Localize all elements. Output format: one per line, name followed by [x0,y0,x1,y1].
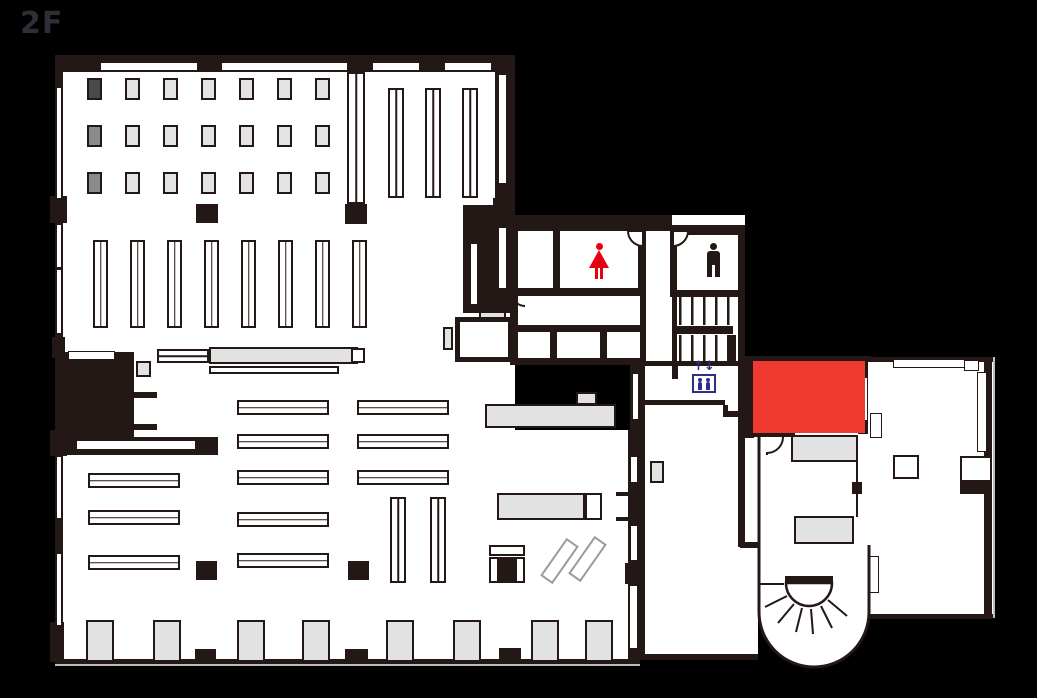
study-desk [315,78,330,100]
pillar [50,196,67,223]
low-shelf [237,553,329,568]
wall-female-left [553,228,560,296]
window [56,456,62,519]
study-desk [87,78,102,100]
elevator-box [692,374,716,393]
niche-band [960,482,992,494]
wall-desk [237,620,265,662]
tall-bookshelf [462,88,478,198]
female-icon-body [589,250,609,268]
study-desk [163,172,178,194]
low-shelf [357,470,449,485]
window [870,413,882,438]
study-desk [201,172,216,194]
pillar [50,622,64,662]
female-icon-leg [600,268,603,279]
window [630,525,638,561]
study-desk [201,125,216,147]
mid-bookshelf [241,240,256,328]
wall-dash-b1 [133,392,157,398]
window [444,62,492,71]
study-desk [163,125,178,147]
male-icon-body [707,251,720,265]
female-icon-leg [595,268,598,279]
study-desk [239,172,254,194]
lower-bookshelf [430,497,446,583]
study-desk [239,125,254,147]
square-table [960,456,992,482]
stair-landing [677,326,733,334]
study-desk [163,78,178,100]
low-shelf [88,473,180,488]
wall-below-female [510,288,646,296]
window [964,360,979,371]
floor-label: 2F [20,6,63,41]
study-desk [125,125,140,147]
window [470,243,478,305]
wall-elev-notch [672,365,678,379]
wall-bench-divider [856,461,858,517]
window [221,62,348,71]
mid-bookshelf [315,240,330,328]
wall-stair-edge [729,335,736,363]
pillar [345,204,367,224]
male-restroom-icon [704,243,722,277]
window [498,227,507,289]
window [56,87,62,199]
elevator-person [706,382,710,390]
pillar [625,563,639,584]
pillar [493,198,515,224]
window [76,440,196,450]
bench-b [794,516,854,544]
male-icon-leg [707,265,712,277]
window [893,359,967,368]
low-shelf [237,470,329,485]
pillar [345,649,368,663]
pillar [50,430,67,456]
pillar [196,204,218,223]
window [68,351,115,360]
pillar [499,648,521,663]
wall-cells-bottom [512,358,643,365]
highlighted-room [753,361,865,433]
copier-top [489,545,525,556]
window [632,373,639,420]
wall-f-bottom [640,654,758,660]
wall-toilet-top [510,215,672,231]
wall-dash-c1 [616,492,636,496]
spiral-notch [869,556,879,593]
low-shelf [88,555,180,570]
corridor-box [650,461,664,483]
wall-desk [386,620,414,662]
stairs-upper-flight [679,297,736,325]
wall-above-spiral [740,542,760,548]
wall-dash-c2 [616,517,636,521]
low-shelf [357,434,449,449]
tall-bookshelf [425,88,441,198]
outer-line-south [55,664,640,666]
male-icon-head [710,243,717,250]
wall-desk [585,620,613,662]
copier-core [497,557,516,583]
window [630,456,638,483]
floor-plan: 2F ↑↓ [0,0,1037,698]
table-end [585,493,602,520]
window [56,269,62,334]
window [498,74,507,184]
counter-end [351,348,365,363]
wall-below-male [670,290,745,297]
wall-desk [86,620,114,662]
study-desk [315,172,330,194]
copier-side [515,557,525,583]
low-shelf [88,510,180,525]
pillar [195,649,216,663]
low-shelf [237,512,329,527]
wall-cell-div-b [600,331,607,359]
elevator-arrows: ↑↓ [691,359,717,374]
pillar [196,561,217,580]
wall-desk [302,620,330,662]
wall-step-h [723,411,747,417]
kiosk-room [455,317,513,362]
window [629,585,638,649]
wall-bc-block [196,437,218,454]
mid-bookshelf [167,240,182,328]
small-table [136,361,151,377]
female-icon-head [596,243,603,250]
bookshelf-wall [347,72,365,204]
mid-bookshelf [93,240,108,328]
service-counter [209,347,358,364]
study-desk [315,125,330,147]
wall-male-left [670,228,677,297]
square-table [893,455,919,479]
tall-bookshelf [388,88,404,198]
elevator-icon: ↑↓ [691,362,717,398]
wall-desk [531,620,559,662]
male-icon-leg [715,265,720,277]
low-shelf [357,400,449,415]
tab [443,327,453,350]
counter-strip [209,366,339,374]
study-desk [277,78,292,100]
window [977,372,987,452]
info-counter [485,404,616,428]
study-desk [87,125,102,147]
low-shelf [237,400,329,415]
wall-corridor-east [738,225,745,547]
wall-desk [453,620,481,662]
study-desk [239,78,254,100]
small-table [576,392,597,405]
mid-bookshelf [204,240,219,328]
study-desk [125,172,140,194]
study-desk [87,172,102,194]
window [56,553,62,626]
lower-bookshelf [390,497,406,583]
outer-line-east [993,357,995,618]
study-desk [277,172,292,194]
study-desk [277,125,292,147]
wall-dash-b2 [133,424,157,430]
female-restroom-icon [589,243,609,279]
counter-shelf [157,349,209,363]
wall-elev-bottom [640,400,725,405]
reading-table [497,493,585,520]
window [100,62,198,71]
window [372,62,420,71]
window [56,224,62,268]
study-desk [201,78,216,100]
wall-male-top [670,225,745,235]
mid-bookshelf [278,240,293,328]
elevator-person [698,382,702,390]
wall-rightwing-bottom [866,614,993,619]
mid-bookshelf [130,240,145,328]
bench-a [791,435,858,462]
black-service-block [58,352,134,440]
study-desk [125,78,140,100]
wall-desk [153,620,181,662]
wall-cell-div-a [550,331,557,359]
wall-cells-top [512,325,643,332]
pillar [348,561,369,580]
low-shelf [237,434,329,449]
mid-bookshelf [352,240,367,328]
pillar [52,337,65,358]
